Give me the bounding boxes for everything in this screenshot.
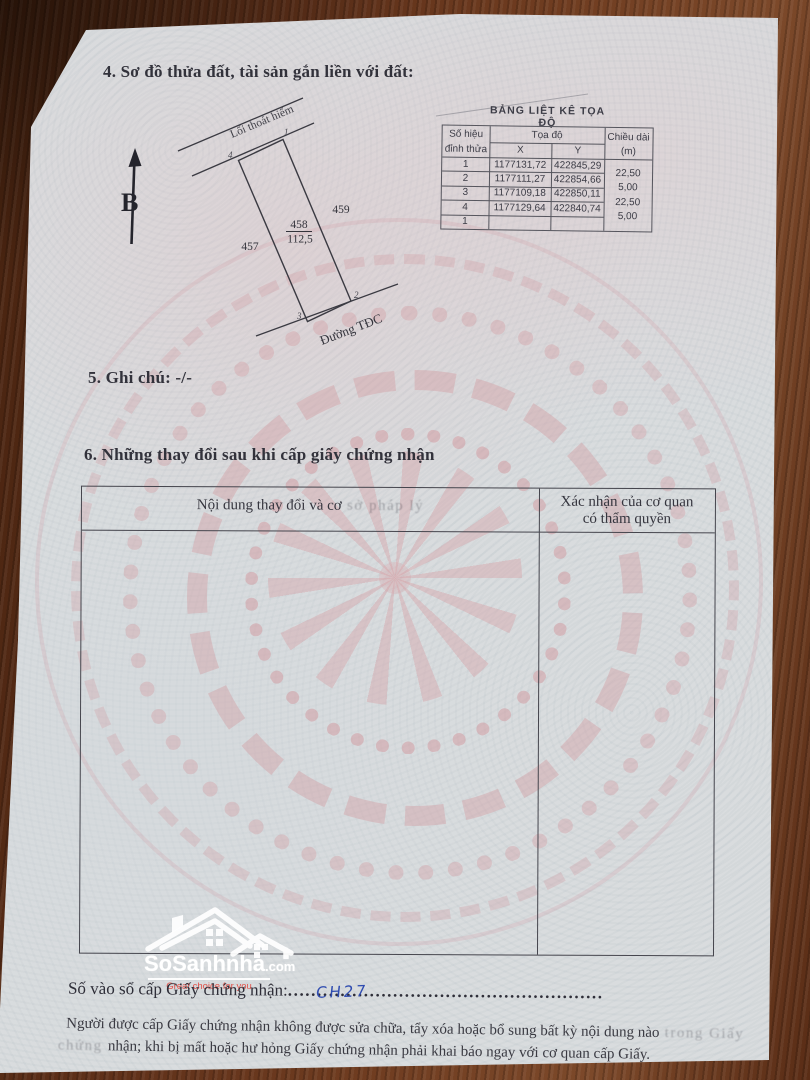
header-coords: Tọa độ	[490, 128, 605, 143]
row-vertex: 1	[441, 214, 488, 229]
segment-length: 5,00	[603, 209, 651, 224]
row-x: 1177129,64	[488, 200, 550, 215]
header-length-2: (m)	[604, 145, 652, 159]
row-x: 1177131,72	[489, 157, 551, 172]
row-vertex: 4	[441, 200, 488, 215]
segment-length: 22,50	[604, 195, 652, 210]
changes-col2-line2: có thẩm quyền	[539, 511, 715, 529]
changes-table: Nội dung thay đổi và cơ sở pháp lý Xác n…	[79, 486, 716, 957]
table-line	[537, 489, 540, 955]
certificate-page: 4. Sơ đồ thửa đất, tài sản gắn liền với …	[0, 0, 810, 1080]
header-x: X	[489, 143, 551, 157]
row-x: 1177109,18	[489, 186, 551, 201]
changes-col1-header: Nội dung thay đổi và cơ sở pháp lý	[82, 497, 539, 516]
registry-label: Số vào sổ cấp Giấy chứng nhận:	[68, 979, 288, 1000]
row-x: 1177111,27	[489, 172, 551, 187]
legal-line-2-faded: chứng	[58, 1037, 108, 1054]
row-y: 422850,11	[551, 187, 604, 202]
registry-handwritten-value: CH27	[315, 982, 369, 1002]
segment-length: 22,50	[604, 166, 652, 181]
logo-brand: SoSanhnha	[144, 951, 265, 976]
changes-col2-header: Xác nhận của cơ quan có thẩm quyền	[539, 494, 715, 529]
section4-title: 4. Sơ đồ thửa đất, tài sản gắn liền với …	[103, 62, 414, 82]
section6-title: 6. Những thay đổi sau khi cấp giấy chứng…	[84, 445, 435, 465]
row-vertex: 1	[442, 157, 489, 172]
changes-col2-line1: Xác nhận của cơ quan	[539, 494, 715, 512]
changes-col1-faded: sở pháp lý	[342, 498, 424, 514]
coordinate-table: Số hiệu đỉnh thửa Tọa độ X Y Chiều dài (…	[440, 125, 653, 233]
row-y: 422854,66	[551, 172, 604, 187]
row-y: 422840,74	[550, 201, 603, 216]
header-vertex-1: Số hiệu	[443, 128, 490, 142]
table-line	[82, 530, 715, 534]
header-length-1: Chiều dài	[604, 131, 652, 145]
section5-title: 5. Ghi chú: -/-	[88, 368, 192, 388]
logo-brand-text: SoSanhnha.com	[144, 951, 295, 977]
legal-line-1-faded: trong Giấy	[659, 1025, 744, 1042]
header-y: Y	[551, 144, 604, 158]
row-y: 422845,29	[551, 158, 604, 173]
row-vertex: 2	[442, 171, 489, 186]
logo-tld: .com	[265, 959, 295, 974]
row-vertex: 3	[442, 185, 489, 200]
photographed-certificate-scene: 4. Sơ đồ thửa đất, tài sản gắn liền với …	[0, 0, 810, 1080]
segment-length: 5,00	[604, 181, 652, 196]
changes-col1-main: Nội dung thay đổi và cơ	[197, 497, 342, 514]
header-vertex-2: đỉnh thửa	[442, 143, 489, 157]
